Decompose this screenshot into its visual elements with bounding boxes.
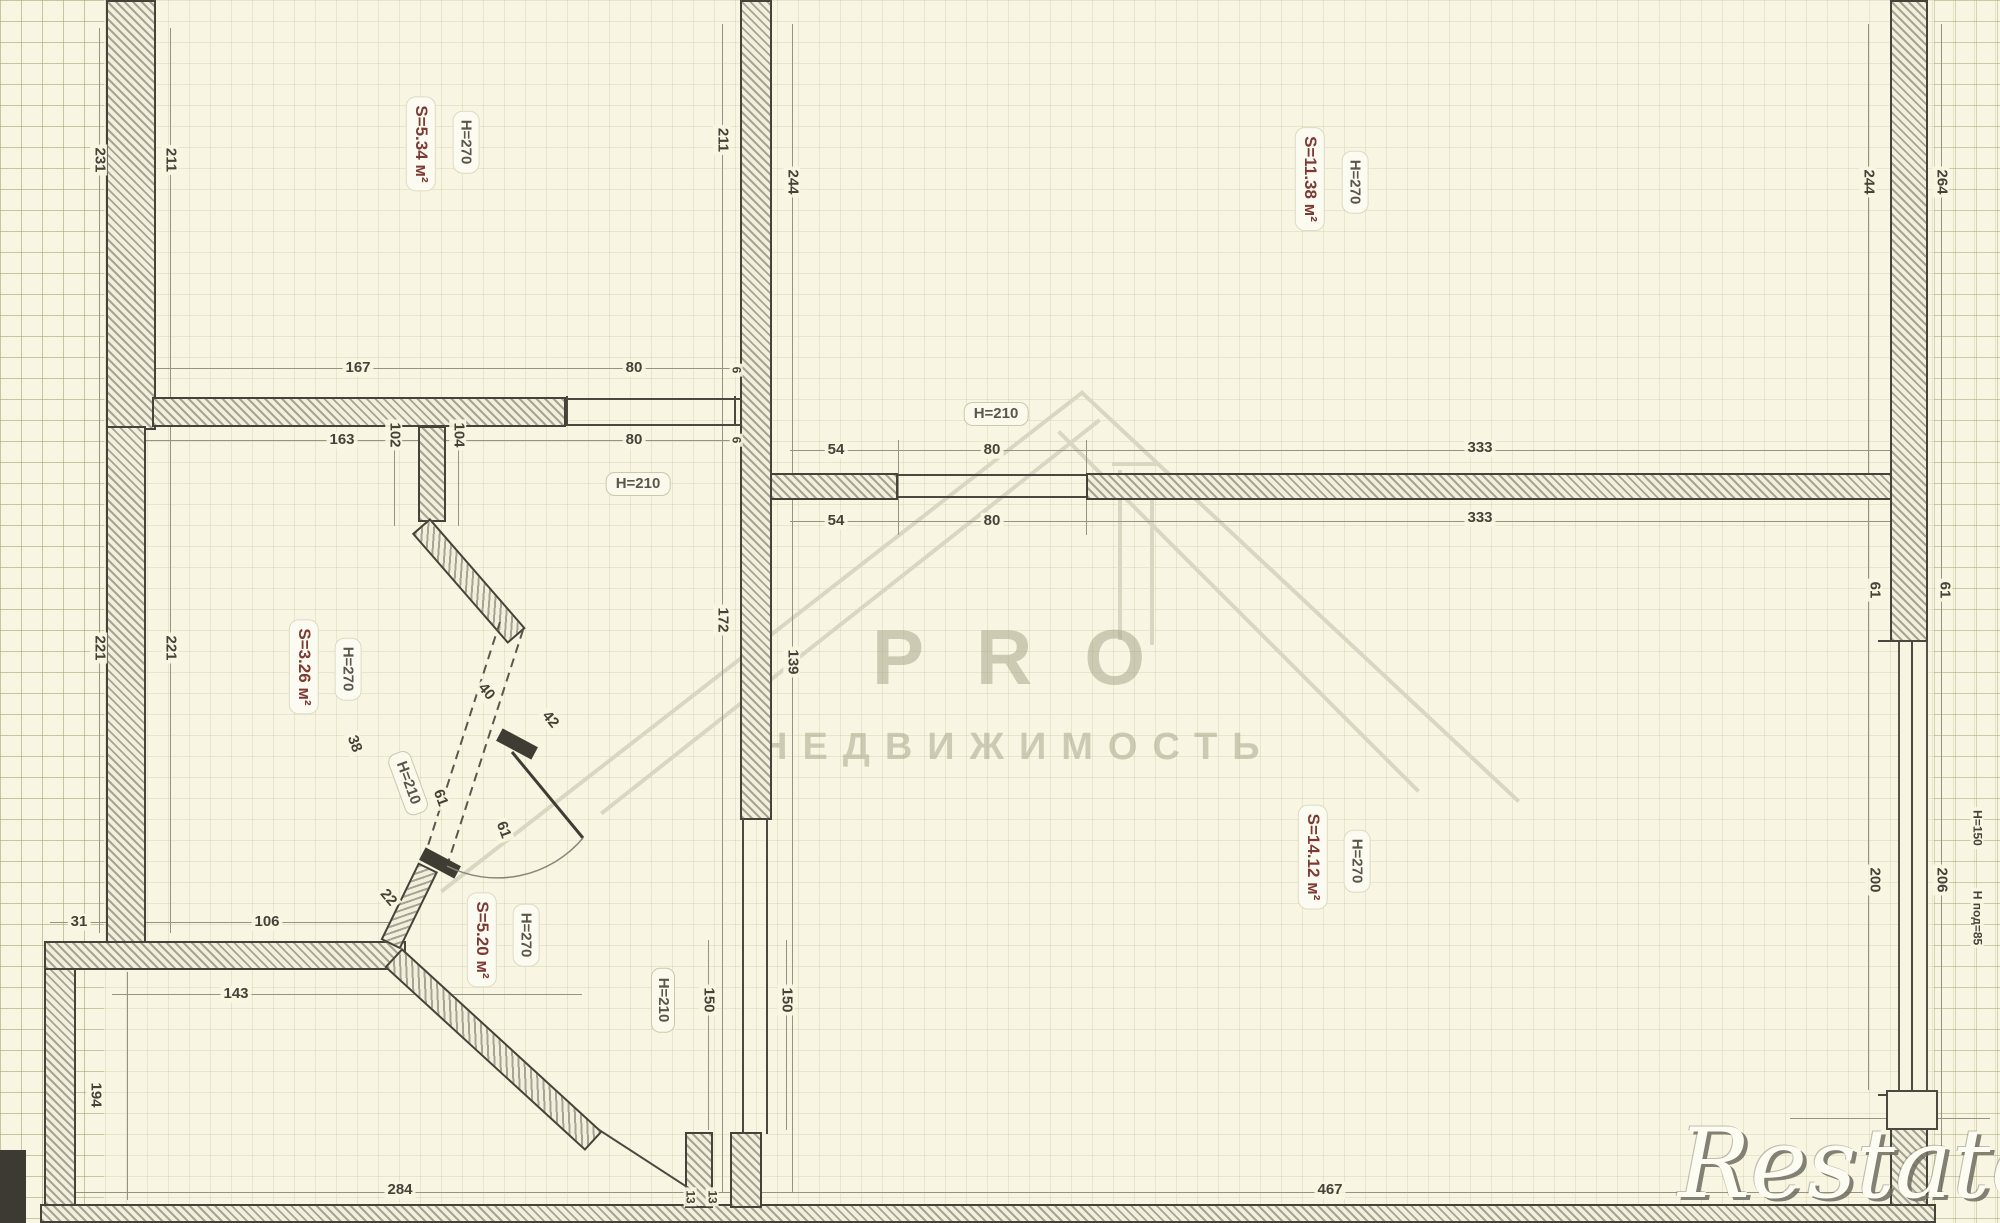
- dimension-label: 244: [784, 166, 801, 197]
- dimension-label: 61: [491, 817, 514, 844]
- dimension-label: 102: [386, 419, 403, 450]
- dimension-line: [790, 521, 1894, 522]
- opening-line: [766, 818, 768, 1134]
- dimension-label: 211: [162, 145, 179, 175]
- dimension-label: 231: [91, 144, 108, 175]
- dimension-label: 61: [1936, 579, 1953, 602]
- floor-plan: PRO НЕДВИЖИМОСТЬ: [0, 0, 2000, 1223]
- dimension-label: 13: [705, 1187, 718, 1206]
- dimension-label: 38: [342, 731, 365, 758]
- dimension-line: [155, 368, 743, 369]
- dimension-label: 172: [714, 604, 731, 635]
- dimension-label: 42: [536, 706, 563, 734]
- wall-left-top: [106, 0, 156, 430]
- room-area-label: S=11.38 м²: [1295, 127, 1325, 231]
- dimension-line: [790, 450, 1894, 451]
- wall-step-horizontal: [44, 941, 406, 970]
- wall-center-vertical: [740, 0, 772, 820]
- dimension-line: [50, 922, 402, 923]
- window-right: [1898, 640, 1928, 1096]
- wall-connector-line: [597, 1128, 692, 1191]
- wall-left-mid: [106, 426, 146, 945]
- wall-diagonal-upper: [412, 518, 526, 644]
- wall-stub-vertical: [418, 426, 446, 522]
- dimension-label: 80: [981, 442, 1004, 459]
- doorway-line: [898, 496, 1086, 498]
- dimension-label: 150: [700, 984, 717, 1015]
- dimension-label: 264: [1933, 166, 1950, 197]
- room-area-label: S=5.34 м²: [406, 96, 436, 191]
- dimension-label: 54: [825, 513, 848, 530]
- dimension-label: 284: [384, 1182, 415, 1199]
- window-end-line: [1878, 640, 1928, 642]
- dimension-label: 221: [162, 632, 179, 663]
- room-area-label: S=5.20 м²: [467, 892, 497, 987]
- dimension-label: 80: [623, 432, 646, 449]
- room-height-label: H=270: [1341, 151, 1368, 214]
- opening-height-tag: H=210: [651, 968, 675, 1033]
- dimension-label: 211: [714, 125, 731, 155]
- dimension-line: [1941, 24, 1942, 1192]
- dimension-label: 6: [729, 434, 742, 447]
- extension-line: [898, 440, 899, 535]
- dimension-label: 6: [729, 364, 742, 377]
- doorway-line: [566, 424, 742, 426]
- dimension-label: 333: [1464, 510, 1495, 527]
- dimension-label: 31: [68, 914, 91, 931]
- extension-line: [127, 972, 128, 1200]
- wall-right-top: [1890, 0, 1928, 642]
- dimension-label: 13: [683, 1187, 696, 1206]
- room-area-label: S=14.12 м²: [1298, 805, 1328, 910]
- dimension-label: 61: [428, 785, 451, 812]
- dimension-line: [50, 1192, 1934, 1193]
- wall-mid-horizontal-right: [1086, 473, 1904, 500]
- restate-logo: Restate: [1678, 1108, 2000, 1220]
- paper-grid: [0, 0, 2000, 1223]
- dimension-label: 61: [1866, 579, 1883, 602]
- dimension-label: 333: [1464, 440, 1495, 457]
- room-height-label: H=270: [1343, 830, 1370, 893]
- wall-top-left-horizontal: [152, 397, 566, 427]
- watermark-chimney-line: [1112, 462, 1158, 466]
- scan-artifact: [0, 1150, 26, 1223]
- doorway-jamb: [566, 396, 568, 426]
- dimension-label: 80: [981, 513, 1004, 530]
- wall-left-bottom: [44, 941, 76, 1223]
- room-height-label: H=270: [334, 638, 361, 701]
- dimension-line: [792, 24, 793, 1192]
- dimension-label: 40: [472, 678, 499, 706]
- dimension-label: 139: [784, 646, 801, 677]
- extension-line: [786, 940, 787, 1130]
- room-height-label: H=270: [452, 111, 479, 174]
- dimension-label: 194: [87, 1079, 104, 1110]
- dimension-label: 206: [1933, 864, 1950, 895]
- dimension-line: [112, 994, 582, 995]
- doorway-jamb: [734, 396, 736, 426]
- doorway-line: [566, 398, 742, 400]
- dimension-label: H=150: [1970, 807, 1983, 849]
- watermark-subtitle: НЕДВИЖИМОСТЬ: [760, 726, 1275, 769]
- dimension-label: Н под=85: [1970, 888, 1983, 948]
- door-swing: [0, 0, 2000, 1223]
- wall-mid-horizontal-left: [770, 473, 898, 500]
- opening-height-tag: H=210: [964, 402, 1029, 426]
- dimension-label: 221: [91, 632, 108, 663]
- dimension-label: 244: [1860, 166, 1877, 197]
- dimension-label: 200: [1866, 864, 1883, 895]
- doorway-line: [898, 474, 1086, 476]
- dimension-label: 80: [623, 360, 646, 377]
- dimension-label: 143: [220, 986, 251, 1003]
- extension-line: [708, 940, 709, 1130]
- watermark-chimney-line: [1150, 495, 1154, 645]
- dimension-label: 150: [778, 984, 795, 1015]
- room-area-label: S=3.26 м²: [289, 619, 319, 714]
- room-height-label: H=270: [512, 904, 539, 967]
- dimension-label: 104: [450, 419, 467, 450]
- opening-line: [742, 818, 744, 1134]
- window-center-line: [1911, 642, 1913, 1094]
- wall-bottom: [40, 1204, 1936, 1223]
- dimension-label: 167: [342, 360, 373, 377]
- watermark-brand: PRO: [872, 612, 1197, 703]
- opening-height-tag: H=210: [606, 472, 671, 496]
- dimension-label: 106: [251, 914, 282, 931]
- dimension-label: 163: [326, 432, 357, 449]
- wall-stub-bottom-b: [730, 1132, 762, 1208]
- dimension-label: 467: [1314, 1182, 1345, 1199]
- dimension-label: 54: [825, 442, 848, 459]
- watermark-roof-line: [1079, 390, 1520, 803]
- opening-height-tag: H=210: [386, 749, 431, 818]
